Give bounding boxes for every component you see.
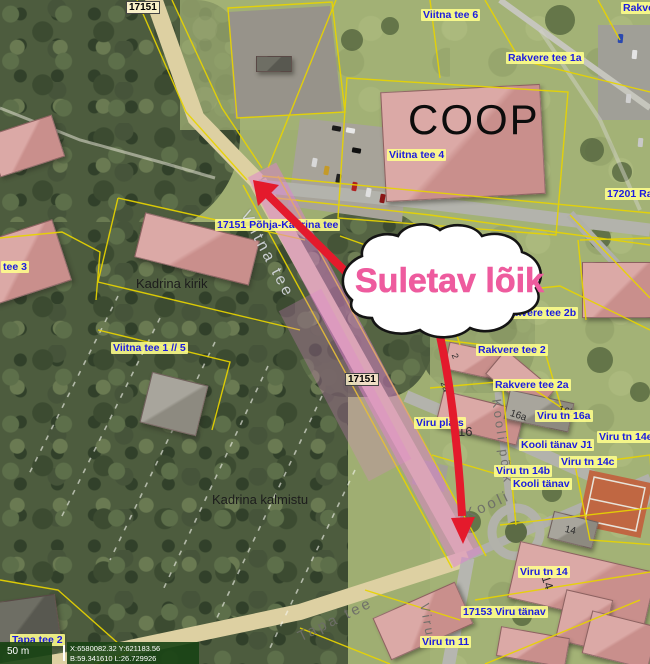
scale-bar-tick	[63, 645, 65, 661]
closure-callout-text: Suletav lõik	[355, 262, 544, 301]
closure-annotation-layer	[0, 0, 650, 664]
scale-bar: 50 m	[0, 642, 52, 664]
aerial-map-canvas[interactable]: 16 16a 16b 14 14 2 2a Viitna tee Kooli p…	[0, 0, 650, 664]
coordinate-xy: X:6580082.32 Y:621183.56	[70, 644, 199, 654]
scale-value: 50 m	[7, 646, 29, 657]
coordinate-readout: X:6580082.32 Y:621183.56 B:59.341610 L:2…	[67, 642, 199, 664]
coordinate-bl: B:59.341610 L:26.729926	[70, 654, 199, 664]
